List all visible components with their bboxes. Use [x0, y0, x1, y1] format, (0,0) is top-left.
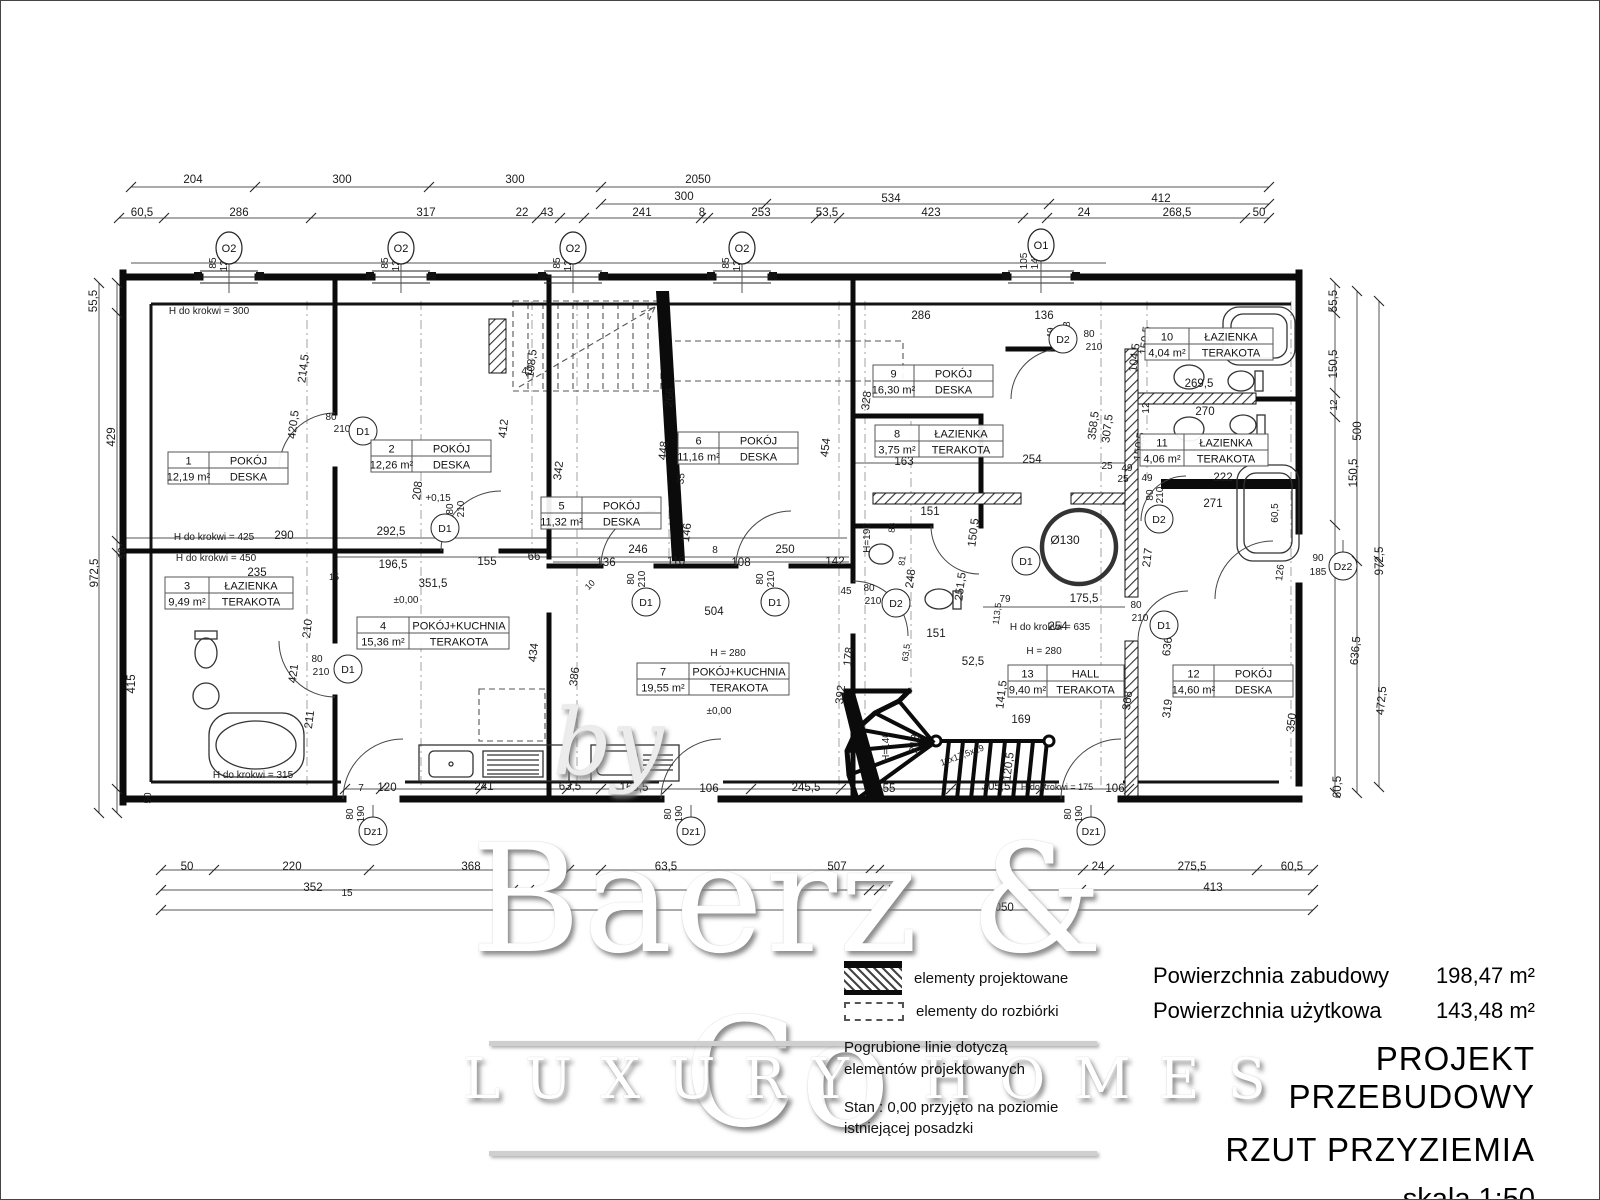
dim-label: 211 — [303, 710, 317, 730]
dim-label: 300 — [332, 174, 351, 186]
dim-label: 110 — [667, 556, 685, 568]
svg-text:ŁAZIENKA: ŁAZIENKA — [1204, 332, 1258, 344]
dim-label: 55,5 — [1328, 290, 1340, 312]
dim-label: H do krokwi = 425 — [174, 532, 255, 543]
dim-label: 66 — [528, 551, 541, 563]
door-marker-label: D1 — [356, 426, 370, 438]
room-label-11: 11ŁAZIENKA4,06 m²TERAKOTA — [1140, 434, 1268, 466]
dim-label: 146 — [680, 522, 694, 543]
dim-label: 241 — [632, 207, 651, 219]
dim-label: 352 — [303, 882, 322, 894]
dim-label: 60,5 — [131, 207, 153, 219]
dim-label: 507 — [827, 861, 846, 873]
dim-label: 85 — [380, 257, 391, 269]
svg-text:POKÓJ: POKÓJ — [935, 368, 972, 381]
dim-label: 292,5 — [377, 526, 406, 538]
dim-label: 86 — [886, 522, 897, 533]
svg-text:13: 13 — [1021, 669, 1033, 681]
dim-label: 420,5 — [286, 410, 301, 440]
dim-label: 434 — [527, 642, 541, 663]
dim-label: 210 — [1086, 342, 1103, 353]
dim-label: 136 — [1034, 310, 1053, 322]
dim-label: 358,5 — [1086, 411, 1101, 441]
dim-label: 80 — [445, 503, 456, 515]
svg-text:TERAKOTA: TERAKOTA — [932, 445, 991, 457]
labels-layer: 204300300205030053441260,528631722432418… — [88, 174, 1389, 915]
dim-label: 266 — [663, 387, 677, 408]
dim-label: 150,5 — [966, 518, 981, 548]
svg-text:ŁAZIENKA: ŁAZIENKA — [1199, 438, 1253, 450]
dim-label: 24 — [1078, 207, 1091, 219]
dim-label: 80 — [311, 654, 323, 665]
door-marker-label: D2 — [889, 598, 903, 610]
dim-label: 245,5 — [792, 782, 821, 794]
dim-label: 63,5 — [900, 643, 912, 662]
dim-label: 55 — [883, 783, 896, 795]
dim-label: 268,5 — [1163, 207, 1192, 219]
dim-label: 319 — [1161, 698, 1175, 719]
svg-text:9: 9 — [890, 369, 896, 381]
svg-text:10: 10 — [1161, 332, 1173, 344]
dim-label: 350 — [1285, 712, 1299, 733]
legend-row-demolition: elementy do rozbiórki — [844, 1002, 1124, 1021]
legend-datum-line1: Stan : 0,00 przyjęto na poziomie — [844, 1097, 1124, 1119]
dim-label: 210 — [301, 618, 315, 639]
window-marker-label: O2 — [394, 243, 409, 255]
dim-label: 12 — [1329, 399, 1340, 411]
dim-label: 60,5 — [1270, 503, 1281, 523]
svg-text:ŁAZIENKA: ŁAZIENKA — [224, 581, 278, 593]
svg-text:9,40 m²: 9,40 m² — [1009, 685, 1047, 697]
dim-label: 50 — [143, 792, 154, 804]
dim-label: 196,5 — [379, 559, 408, 571]
door-marker-label: Dz1 — [364, 826, 383, 838]
legend: elementy projektowane elementy do rozbió… — [844, 961, 1124, 1140]
dim-label: 85 — [552, 257, 563, 269]
dim-label: 413 — [1203, 882, 1222, 894]
dim-label: 80 — [663, 808, 674, 820]
dim-label: 271 — [1203, 498, 1222, 510]
room-label-2: 2POKÓJ12,26 m²DESKA — [370, 440, 491, 472]
svg-text:ŁAZIENKA: ŁAZIENKA — [934, 429, 988, 441]
dim-label: 368 — [461, 861, 480, 873]
door-marker-label: D2 — [1056, 334, 1070, 346]
dim-label: 636,5 — [1349, 636, 1363, 666]
area-built-value: 198,47 m² — [1436, 963, 1535, 989]
svg-text:DESKA: DESKA — [740, 452, 778, 464]
dim-label: 220 — [282, 861, 301, 873]
door-marker-label: D1 — [768, 597, 782, 609]
dim-label: 248 — [904, 568, 918, 589]
dim-label: 50 — [181, 861, 194, 873]
dim-label: 165,5 — [620, 782, 649, 794]
svg-text:DESKA: DESKA — [603, 517, 641, 529]
room-label-13: 13HALL9,40 m²TERAKOTA — [1008, 665, 1124, 697]
svg-text:12,26 m²: 12,26 m² — [370, 460, 414, 472]
dim-label: 15 — [329, 572, 339, 582]
legend-note-line2: elementów projektowanych — [844, 1059, 1124, 1081]
dim-label: 108 — [731, 557, 750, 569]
dim-label: 214,5 — [296, 354, 311, 384]
dim-label: 270 — [1195, 406, 1214, 418]
room-label-3: 3ŁAZIENKA9,49 m²TERAKOTA — [165, 577, 293, 609]
projected-wall-symbol — [844, 961, 902, 995]
svg-text:TERAKOTA: TERAKOTA — [710, 683, 769, 695]
dim-label: 63,5 — [655, 861, 677, 873]
dim-label: 43 — [521, 366, 533, 377]
svg-text:12,19 m²: 12,19 m² — [167, 472, 211, 484]
dim-label: 155 — [477, 556, 496, 568]
dim-label: 105 — [1019, 252, 1030, 269]
dim-label: 150,5 — [1348, 459, 1360, 488]
dim-label: 151 — [926, 628, 945, 640]
svg-text:5: 5 — [558, 501, 564, 513]
svg-text:4,04 m²: 4,04 m² — [1148, 348, 1186, 360]
dim-label: H do krokwi = 315 — [213, 770, 294, 781]
door-marker-label: Dz1 — [1082, 826, 1101, 838]
dim-label: 351,5 — [419, 578, 448, 590]
legend-note-datum: Stan : 0,00 przyjęto na poziomie istniej… — [844, 1097, 1124, 1141]
dim-label: 210 — [456, 500, 467, 517]
legend-row-projected: elementy projektowane — [844, 961, 1124, 995]
room-label-5: 5POKÓJ11,32 m²DESKA — [540, 497, 661, 529]
svg-text:POKÓJ: POKÓJ — [1235, 668, 1272, 681]
svg-text:POKÓJ: POKÓJ — [603, 500, 640, 513]
area-built-label: Powierzchnia zabudowy — [1153, 963, 1389, 989]
dim-label: 50 — [1253, 207, 1266, 219]
dim-label: 24 — [1092, 861, 1105, 873]
dim-label: 210 — [766, 570, 777, 587]
room-label-4: 4POKÓJ+KUCHNIA15,36 m²TERAKOTA — [357, 617, 509, 649]
dim-label: 53,5 — [816, 207, 838, 219]
dim-label: 500 — [1352, 421, 1364, 440]
svg-text:4,06 m²: 4,06 m² — [1143, 454, 1181, 466]
dim-label: 106 — [1105, 783, 1124, 795]
project-title: PROJEKT PRZEBUDOWY — [1153, 1040, 1535, 1116]
dim-label: 300 — [505, 174, 524, 186]
dim-label: ±0,00 — [707, 706, 732, 717]
dim-label: 448 — [657, 440, 671, 461]
dim-label: 286 — [911, 310, 930, 322]
window-marker-label: O2 — [735, 243, 750, 255]
dim-label: 254 — [1022, 454, 1042, 466]
dim-label: 472,5 — [1375, 686, 1389, 716]
door-marker-label: D1 — [438, 523, 452, 535]
drawing-scale: skala 1:50 — [1153, 1183, 1535, 1200]
room-label-10: 10ŁAZIENKA4,04 m²TERAKOTA — [1145, 328, 1273, 360]
dim-label: 22 — [516, 207, 529, 219]
dim-label: H do krokwi = 300 — [169, 306, 250, 317]
dim-label: 5 — [888, 884, 894, 895]
svg-text:POKÓJ: POKÓJ — [433, 443, 470, 456]
svg-text:TERAKOTA: TERAKOTA — [222, 597, 281, 609]
svg-text:8: 8 — [894, 429, 900, 441]
dim-label: 208 — [411, 480, 425, 501]
dim-label: 49 — [1121, 463, 1133, 474]
svg-text:19,55 m²: 19,55 m² — [641, 683, 685, 695]
dim-label: 210 — [865, 596, 882, 607]
dim-label: H=140 — [881, 732, 892, 762]
dim-label: 342 — [552, 460, 566, 481]
dim-label: 286 — [229, 207, 248, 219]
dim-label: 12 — [1141, 402, 1152, 414]
svg-text:1: 1 — [185, 456, 191, 468]
dim-label: 972,5 — [89, 559, 101, 588]
svg-text:DESKA: DESKA — [433, 460, 471, 472]
dim-label: 7 — [358, 783, 364, 794]
dim-label: 85 — [721, 257, 732, 269]
project-subtitle: RZUT PRZYZIEMIA — [1153, 1131, 1535, 1169]
dim-label: 60,5 — [1281, 861, 1303, 873]
svg-text:TERAKOTA: TERAKOTA — [1197, 454, 1256, 466]
area-usable-value: 143,48 m² — [1436, 998, 1535, 1024]
dim-label: 210 — [334, 424, 351, 435]
dim-label: 210 — [1155, 486, 1166, 503]
dim-label: 246 — [628, 544, 647, 556]
dim-label: 251,5 — [953, 572, 968, 602]
window-marker-label: O2 — [222, 243, 237, 255]
title-block: Powierzchnia zabudowy 198,47 m² Powierzc… — [1153, 963, 1535, 1200]
dim-label: 141,5 — [994, 680, 1009, 710]
dim-label: 25 — [1117, 474, 1129, 485]
construction-lines — [307, 301, 1291, 789]
dim-label: 250 — [775, 544, 794, 556]
room-label-6: 6POKÓJ11,16 m²DESKA — [677, 432, 798, 464]
dim-label: 307,5 — [1100, 414, 1115, 444]
dim-label: Ø130 — [1050, 533, 1080, 547]
dim-label: 80 — [1063, 808, 1074, 820]
area-usable-label: Powierzchnia użytkowa — [1153, 998, 1382, 1024]
dim-label: 972,5 — [1374, 547, 1386, 576]
dim-label: 222 — [1213, 472, 1232, 484]
svg-text:TERAKOTA: TERAKOTA — [430, 637, 489, 649]
dim-label: 2050 — [988, 902, 1014, 914]
dim-label: 2050 — [685, 174, 711, 186]
dim-label: 412 — [497, 418, 511, 439]
dim-label: H = 280 — [1026, 646, 1062, 657]
dim-label: 45 — [840, 586, 852, 597]
svg-text:DESKA: DESKA — [935, 385, 973, 397]
svg-text:POKÓJ+KUCHNIA: POKÓJ+KUCHNIA — [412, 620, 506, 633]
svg-text:9,49 m²: 9,49 m² — [168, 597, 206, 609]
dim-label: 290 — [274, 530, 293, 542]
svg-text:DESKA: DESKA — [1235, 685, 1273, 697]
dim-label: 151 — [920, 506, 939, 518]
area-row-usable: Powierzchnia użytkowa 143,48 m² — [1153, 998, 1535, 1024]
dim-label: 25 — [1101, 461, 1113, 472]
dim-label: 85 — [208, 257, 219, 269]
legend-note-bold-lines: Pogrubione linie dotyczą elementów proje… — [844, 1037, 1124, 1081]
door-marker-label: D1 — [1157, 620, 1171, 632]
door-marker-label: D1 — [639, 597, 653, 609]
svg-text:POKÓJ: POKÓJ — [740, 435, 777, 448]
dim-label: 81 — [896, 555, 907, 566]
dim-label: H=190 — [862, 523, 873, 553]
dim-label: 210 — [637, 570, 648, 587]
dim-label: 178 — [842, 646, 856, 667]
dim-label: 60,5 — [1332, 776, 1344, 798]
svg-text:3: 3 — [184, 581, 190, 593]
svg-text:POKÓJ+KUCHNIA: POKÓJ+KUCHNIA — [692, 666, 786, 679]
door-marker-label: D1 — [1019, 556, 1033, 568]
svg-text:6: 6 — [695, 436, 701, 448]
svg-text:TERAKOTA: TERAKOTA — [1056, 685, 1115, 697]
dim-label: 300 — [674, 191, 693, 203]
dim-label: 305,5 — [982, 781, 1011, 793]
dim-label: 126 — [1274, 563, 1287, 581]
room-label-9: 9POKÓJ16,30 m²DESKA — [872, 365, 993, 397]
dim-label: ±0,00 — [394, 595, 419, 606]
dim-label: 52,5 — [962, 656, 984, 668]
dim-label: 210 — [1132, 613, 1149, 624]
svg-text:12: 12 — [1187, 669, 1199, 681]
svg-text:11,32 m²: 11,32 m² — [540, 517, 583, 529]
svg-text:11: 11 — [1156, 438, 1167, 450]
dim-label: 163 — [894, 456, 913, 468]
dim-label: 113,5 — [991, 602, 1004, 625]
window-marker-label: O1 — [1034, 240, 1049, 252]
dim-label: 55,5 — [88, 290, 100, 312]
demolition-symbol — [844, 1002, 904, 1021]
dim-label: 217 — [1141, 547, 1155, 568]
window-marker-label: O2 — [566, 243, 581, 255]
dim-label: 142 — [825, 556, 844, 568]
dim-label: 429 — [106, 427, 118, 446]
dim-label: 80 — [345, 808, 356, 820]
dim-label: 204 — [183, 174, 203, 186]
dim-label: 80 — [1083, 329, 1095, 340]
dim-label: 106 — [699, 783, 718, 795]
door-marker-label: Dz2 — [1334, 561, 1353, 573]
dim-label: H do krokwi = 635 — [1010, 622, 1091, 633]
dim-label: 150,5 — [1328, 350, 1340, 379]
dim-label: 241 — [474, 781, 493, 793]
svg-text:16,30 m²: 16,30 m² — [872, 385, 916, 397]
legend-datum-line2: istniejącej posadzki — [844, 1118, 1124, 1140]
door-marker-label: D2 — [1152, 514, 1166, 526]
svg-text:TERAKOTA: TERAKOTA — [1202, 348, 1261, 360]
svg-text:7: 7 — [660, 667, 666, 679]
dim-label: 80 — [755, 573, 766, 585]
legend-note-line1: Pogrubione linie dotyczą — [844, 1037, 1124, 1059]
dim-label: 317 — [416, 207, 435, 219]
dim-label: 80 — [1130, 600, 1142, 611]
blueprint-page: 204300300205030053441260,528631722432418… — [0, 0, 1600, 1200]
dim-label: 175,5 — [1070, 593, 1099, 605]
svg-text:14,60 m²: 14,60 m² — [1172, 685, 1216, 697]
dim-label: 80 — [626, 573, 637, 585]
dim-label: 18 — [117, 547, 128, 559]
svg-text:DESKA: DESKA — [230, 472, 268, 484]
dim-label: 421 — [287, 663, 301, 684]
dim-label: 15 — [341, 888, 353, 899]
room-label-12: 12POKÓJ14,60 m²DESKA — [1172, 665, 1293, 697]
dim-label: 504 — [704, 606, 724, 618]
svg-text:15,36 m²: 15,36 m² — [361, 637, 405, 649]
dim-label: 169 — [1011, 714, 1030, 726]
dim-label: H do krokwi = 175 — [1021, 782, 1093, 792]
dim-label: 386 — [568, 666, 582, 687]
dim-label: 49 — [1141, 473, 1153, 484]
svg-text:HALL: HALL — [1072, 669, 1100, 681]
dim-label: 412 — [1151, 193, 1170, 205]
dim-label: 269,5 — [1185, 378, 1214, 390]
dim-label: 120 — [377, 782, 396, 794]
dim-label: 80 — [863, 583, 875, 594]
dim-label: 275,5 — [1178, 861, 1207, 873]
legend-demolition-label: elementy do rozbiórki — [916, 1003, 1059, 1020]
dim-label: 210 — [313, 667, 330, 678]
dim-label: 213 — [908, 733, 922, 754]
dim-label: 10 — [583, 578, 597, 592]
dim-label: 8 — [712, 545, 718, 556]
dim-label: 35 — [675, 472, 687, 485]
watermark-line-bottom — [489, 1151, 1097, 1156]
room-label-7: 7POKÓJ+KUCHNIA19,55 m²TERAKOTA — [637, 663, 789, 695]
room-label-8: 8ŁAZIENKA3,75 m²TERAKOTA — [875, 425, 1003, 457]
svg-text:4: 4 — [380, 621, 386, 633]
dim-label: 185 — [1310, 567, 1327, 578]
door-marker-label: Dz1 — [682, 826, 701, 838]
legend-projected-label: elementy projektowane — [914, 970, 1068, 987]
dim-label: 423 — [921, 207, 940, 219]
dim-label: 63,5 — [559, 781, 581, 793]
dim-label: +0,15 — [425, 493, 451, 504]
svg-text:11,16 m²: 11,16 m² — [677, 452, 720, 464]
dim-label: H do krokwi = 450 — [176, 553, 257, 564]
svg-text:POKÓJ: POKÓJ — [230, 455, 267, 468]
dim-label: 43 — [541, 207, 554, 219]
dim-label: 80 — [325, 412, 337, 423]
door-marker-label: D1 — [341, 664, 355, 676]
svg-text:3,75 m²: 3,75 m² — [878, 445, 916, 457]
room-label-1: 1POKÓJ12,19 m²DESKA — [167, 452, 288, 484]
dim-label: 534 — [881, 193, 901, 205]
dim-label: 90 — [1312, 553, 1324, 564]
dim-label: 415 — [126, 674, 138, 693]
dim-label: 454 — [819, 437, 833, 458]
dim-label: H = 280 — [710, 648, 746, 659]
dim-label: 392 — [834, 684, 848, 705]
dim-label: 136 — [596, 557, 615, 569]
area-row-built: Powierzchnia zabudowy 198,47 m² — [1153, 963, 1535, 989]
svg-text:2: 2 — [388, 444, 394, 456]
